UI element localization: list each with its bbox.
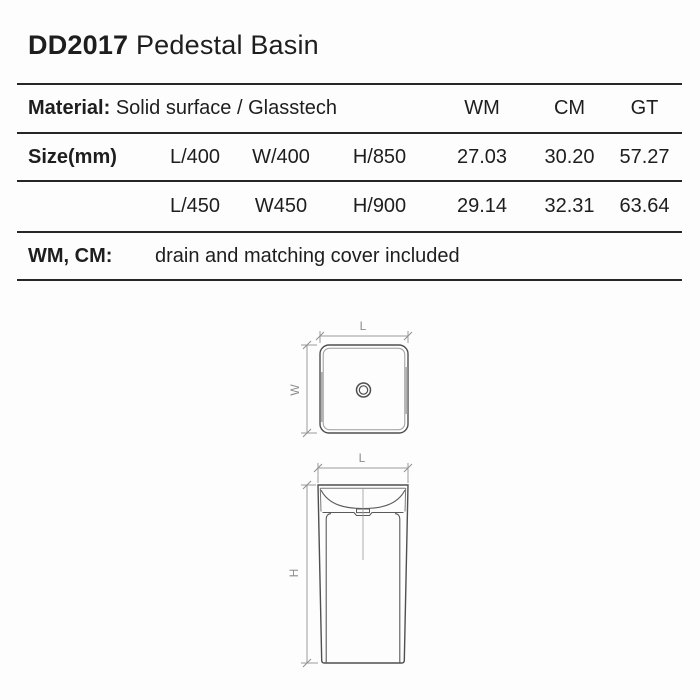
top-view-basin-outline [320,345,408,433]
table-row-size-2: L/450 W450 H/900 29.14 32.31 63.64 [17,180,682,231]
size-1-gt-value: 57.27 [607,146,682,169]
drain-outer-circle-icon [357,383,371,397]
top-view-width-dimension [301,341,317,437]
size-2-cm-value: 32.31 [532,195,607,218]
top-view-drawing: L W [288,319,412,437]
column-header-gt: GT [607,97,682,120]
product-model: DD2017 [28,30,128,60]
table-row-note: WM, CM: drain and matching cover include… [17,231,682,281]
column-header-cm: CM [532,97,607,120]
size-label: Size(mm) [17,146,155,169]
front-view-height-dimension [301,481,318,667]
technical-drawings: L W [268,310,443,680]
size-2-height: H/900 [327,195,432,218]
product-name: Pedestal Basin [136,30,319,60]
size-1-wm-value: 27.03 [432,146,532,169]
front-view-length-label: L [359,451,366,465]
table-row-material: Material: Solid surface / Glasstech WM C… [17,83,682,132]
front-view-height-label: H [287,569,301,578]
page-title: DD2017 Pedestal Basin [28,30,319,61]
top-view-width-label: W [288,384,302,396]
size-1-height: H/850 [327,146,432,169]
note-label: WM, CM: [17,245,155,268]
size-2-width: W450 [235,195,327,218]
drain-inner-circle-icon [359,386,367,394]
material-value: Solid surface / Glasstech [116,97,337,119]
size-2-length: L/450 [155,195,235,218]
front-view-drawing: L H [287,451,412,667]
note-text: drain and matching cover included [155,245,682,268]
size-1-length: L/400 [155,146,235,169]
size-1-cm-value: 30.20 [532,146,607,169]
front-view-right-wall-inner [405,488,406,512]
material-cell: Material: Solid surface / Glasstech [17,97,432,120]
material-label: Material: [17,97,110,119]
top-view-length-label: L [360,319,367,333]
top-view-basin-inner-wall [323,348,405,430]
table-row-size-1: Size(mm) L/400 W/400 H/850 27.03 30.20 5… [17,132,682,180]
column-header-wm: WM [432,97,532,120]
front-view-left-pedestal-inner [326,514,331,663]
front-view-left-wall-inner [320,488,321,512]
front-view-right-pedestal-inner [395,514,400,663]
size-1-width: W/400 [235,146,327,169]
spec-table: Material: Solid surface / Glasstech WM C… [17,83,682,281]
spec-sheet: DD2017 Pedestal Basin Material: Solid su… [0,0,700,700]
size-2-gt-value: 63.64 [607,195,682,218]
size-2-wm-value: 29.14 [432,195,532,218]
front-view-length-dimension [314,463,412,483]
